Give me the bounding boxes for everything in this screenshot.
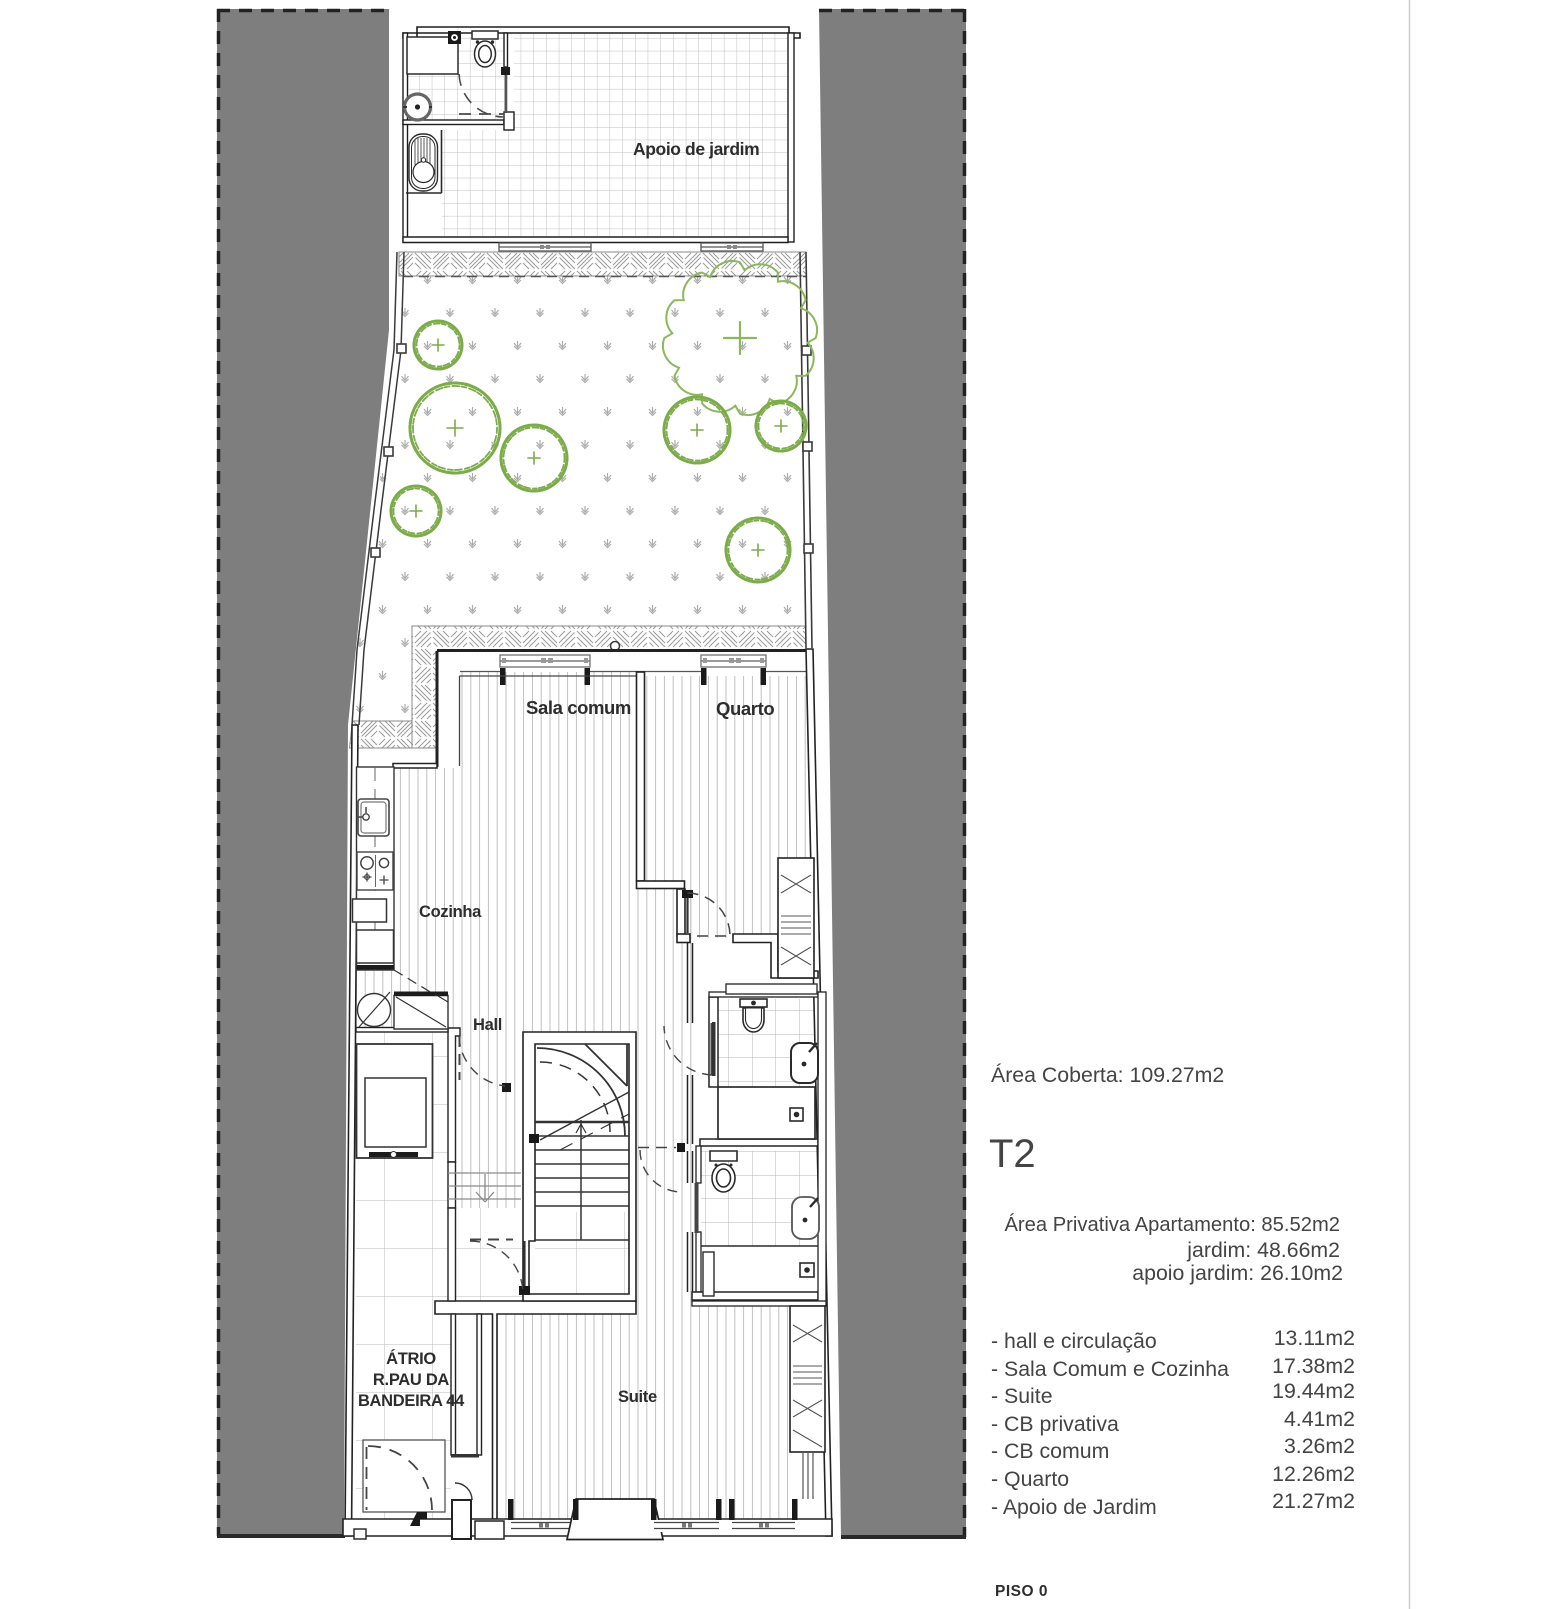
svg-text:13.11m2: 13.11m2 — [1274, 1326, 1355, 1350]
svg-text:21.27m2: 21.27m2 — [1272, 1489, 1355, 1513]
svg-text:Cozinha: Cozinha — [419, 903, 482, 921]
svg-text:apoio jardim: 26.10m2: apoio jardim: 26.10m2 — [1132, 1261, 1343, 1285]
svg-text:Hall: Hall — [473, 1016, 502, 1034]
svg-text:T2: T2 — [989, 1132, 1036, 1176]
svg-text:R.PAU DA: R.PAU DA — [373, 1371, 450, 1389]
svg-text:Sala comum: Sala comum — [526, 697, 631, 718]
svg-text:- CB comum: - CB comum — [991, 1439, 1109, 1463]
svg-text:PISO 0: PISO 0 — [995, 1583, 1048, 1600]
svg-text:Apoio de jardim: Apoio de jardim — [633, 139, 759, 159]
svg-text:Suite: Suite — [618, 1388, 657, 1406]
svg-text:BANDEIRA 44: BANDEIRA 44 — [358, 1392, 465, 1410]
svg-text:- CB privativa: - CB privativa — [991, 1412, 1119, 1436]
svg-text:jardim: 48.66m2: jardim: 48.66m2 — [1186, 1238, 1340, 1262]
svg-text:- Apoio de Jardim: - Apoio de Jardim — [991, 1495, 1157, 1519]
svg-text:12.26m2: 12.26m2 — [1272, 1462, 1355, 1486]
svg-text:Quarto: Quarto — [716, 698, 774, 719]
svg-text:Área Privativa Apartamento: 85: Área Privativa Apartamento: 85.52m2 — [1004, 1213, 1340, 1236]
svg-text:Área Coberta: 109.27m2: Área Coberta: 109.27m2 — [991, 1062, 1224, 1087]
svg-text:- Suite: - Suite — [991, 1384, 1053, 1408]
svg-text:- Sala Comum e Cozinha: - Sala Comum e Cozinha — [991, 1357, 1229, 1381]
svg-text:ÁTRIO: ÁTRIO — [386, 1349, 436, 1368]
svg-text:- Quarto: - Quarto — [991, 1467, 1069, 1491]
svg-text:19.44m2: 19.44m2 — [1272, 1379, 1355, 1403]
svg-text:3.26m2: 3.26m2 — [1284, 1434, 1355, 1458]
svg-text:- hall e circulação: - hall e circulação — [991, 1329, 1157, 1353]
svg-text:4.41m2: 4.41m2 — [1284, 1407, 1355, 1431]
svg-text:17.38m2: 17.38m2 — [1272, 1354, 1355, 1378]
